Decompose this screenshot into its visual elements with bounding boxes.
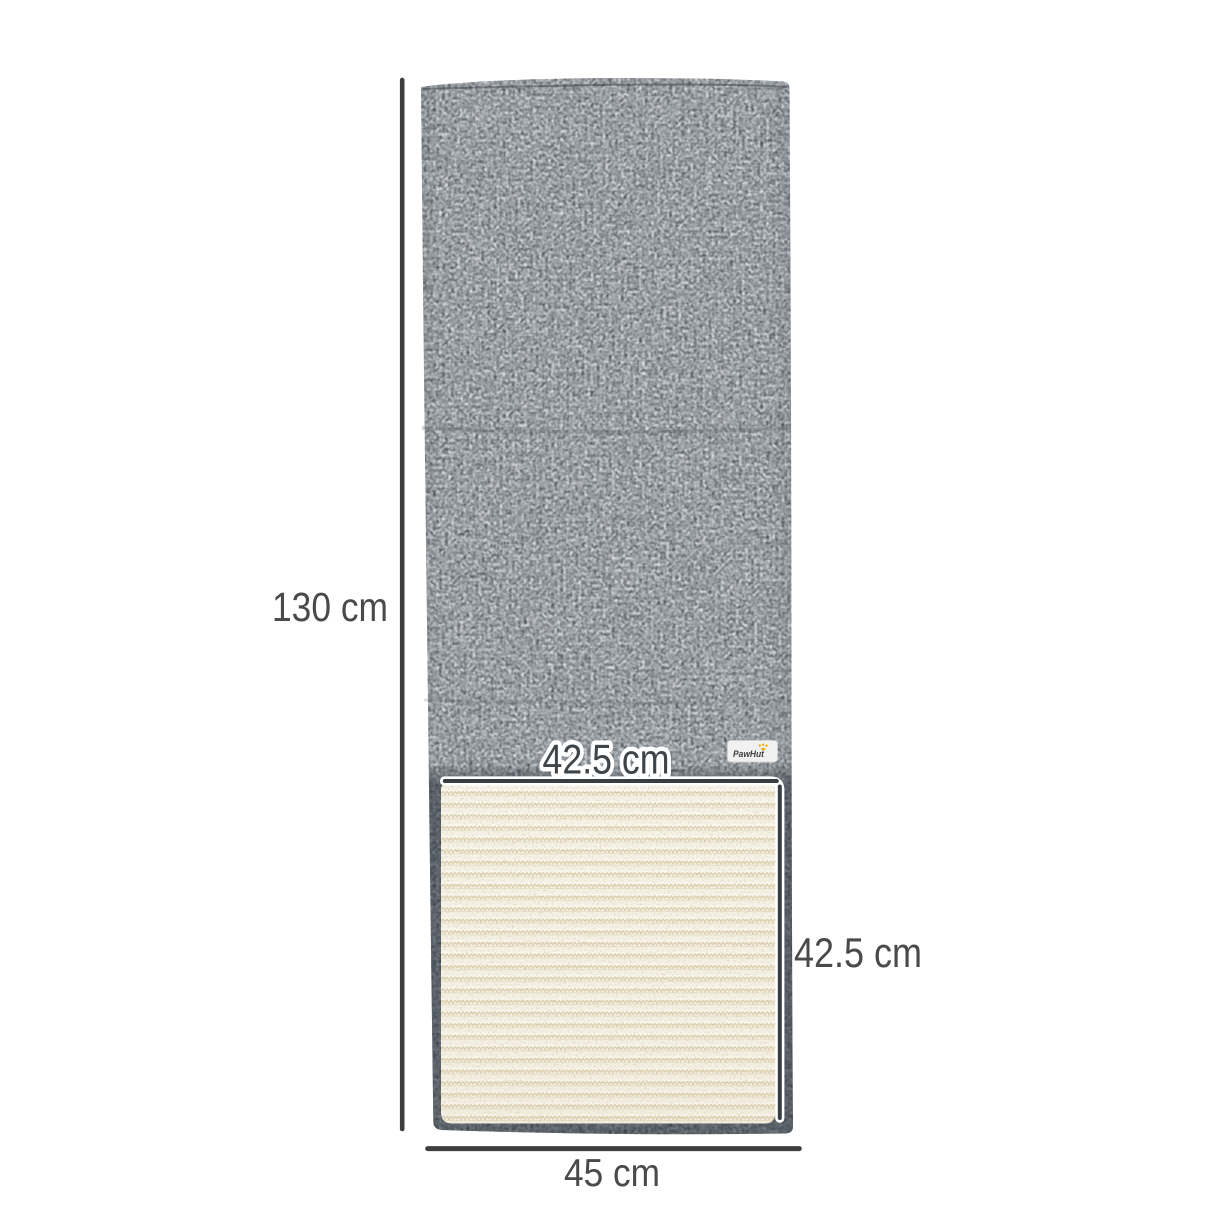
svg-text:42.5 cm: 42.5 cm (794, 929, 922, 976)
svg-text:42.5 cm: 42.5 cm (543, 736, 670, 783)
svg-text:45 cm: 45 cm (564, 1152, 660, 1195)
svg-text:PawHut: PawHut (733, 749, 765, 760)
svg-text:130 cm: 130 cm (272, 584, 388, 630)
